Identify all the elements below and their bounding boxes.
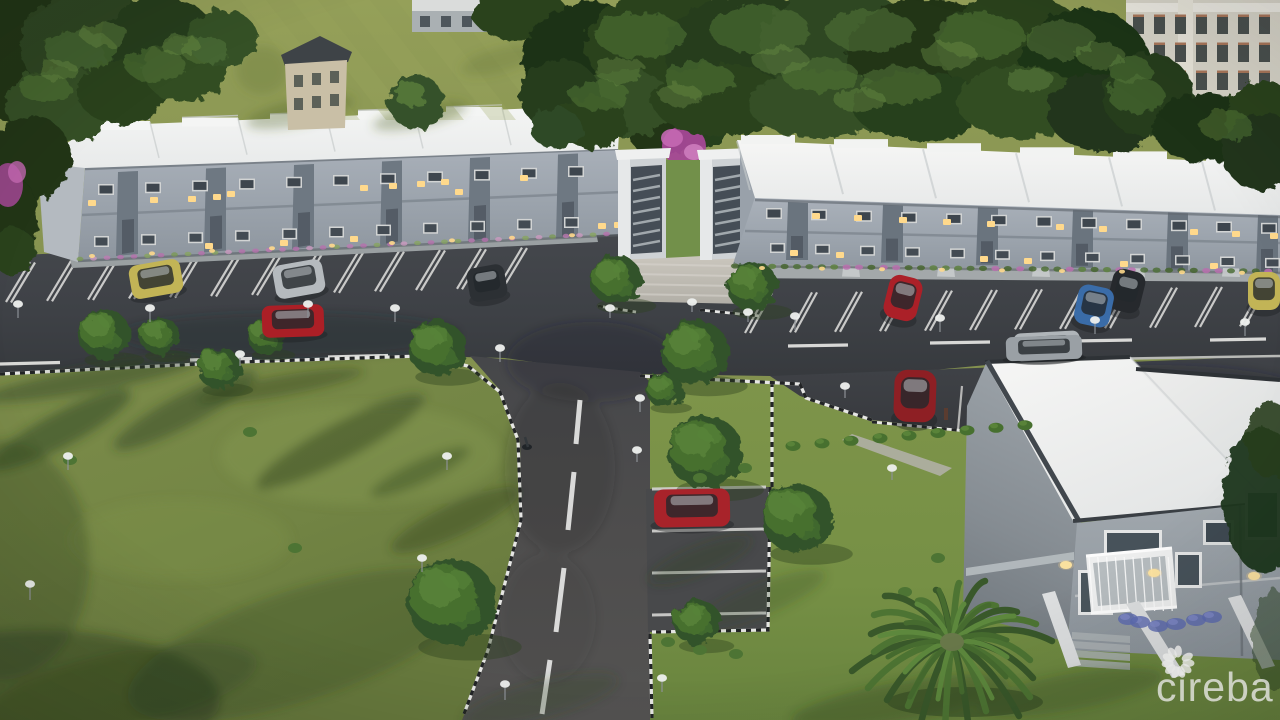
svg-text:cireba: cireba [1156,664,1274,710]
